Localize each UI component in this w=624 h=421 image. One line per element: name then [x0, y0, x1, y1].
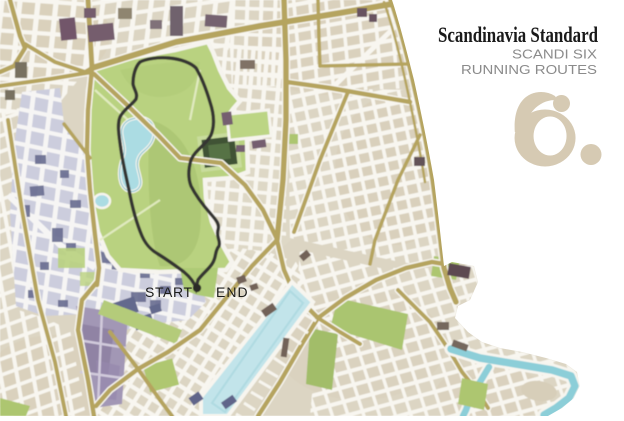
- svg-text:SCANDI SIX: SCANDI SIX: [512, 48, 598, 62]
- svg-text:RUNNING ROUTES: RUNNING ROUTES: [461, 63, 597, 77]
- svg-text:START: START: [145, 284, 193, 300]
- svg-text:END: END: [216, 284, 249, 300]
- svg-text:Scandinavia Standard: Scandinavia Standard: [438, 22, 598, 47]
